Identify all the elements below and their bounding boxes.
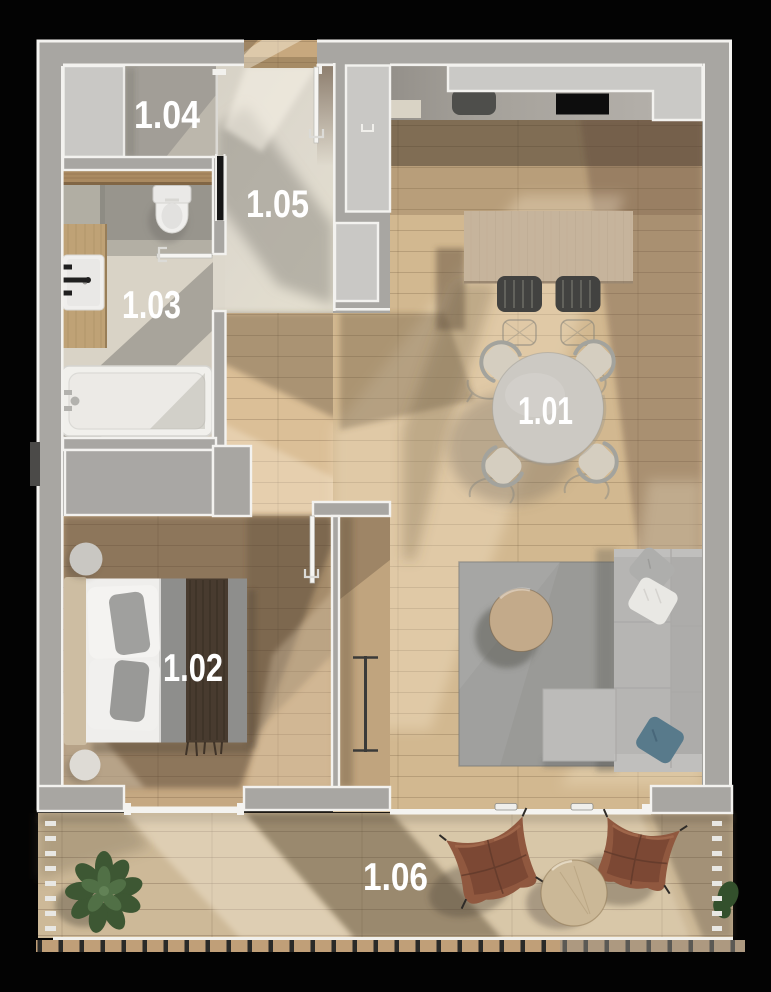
svg-text:1.05: 1.05 (246, 183, 309, 226)
svg-text:1.03: 1.03 (122, 284, 181, 327)
svg-text:1.04: 1.04 (134, 94, 200, 137)
svg-text:1.01: 1.01 (518, 390, 573, 433)
svg-text:1.02: 1.02 (163, 647, 223, 690)
svg-text:1.06: 1.06 (363, 856, 428, 899)
